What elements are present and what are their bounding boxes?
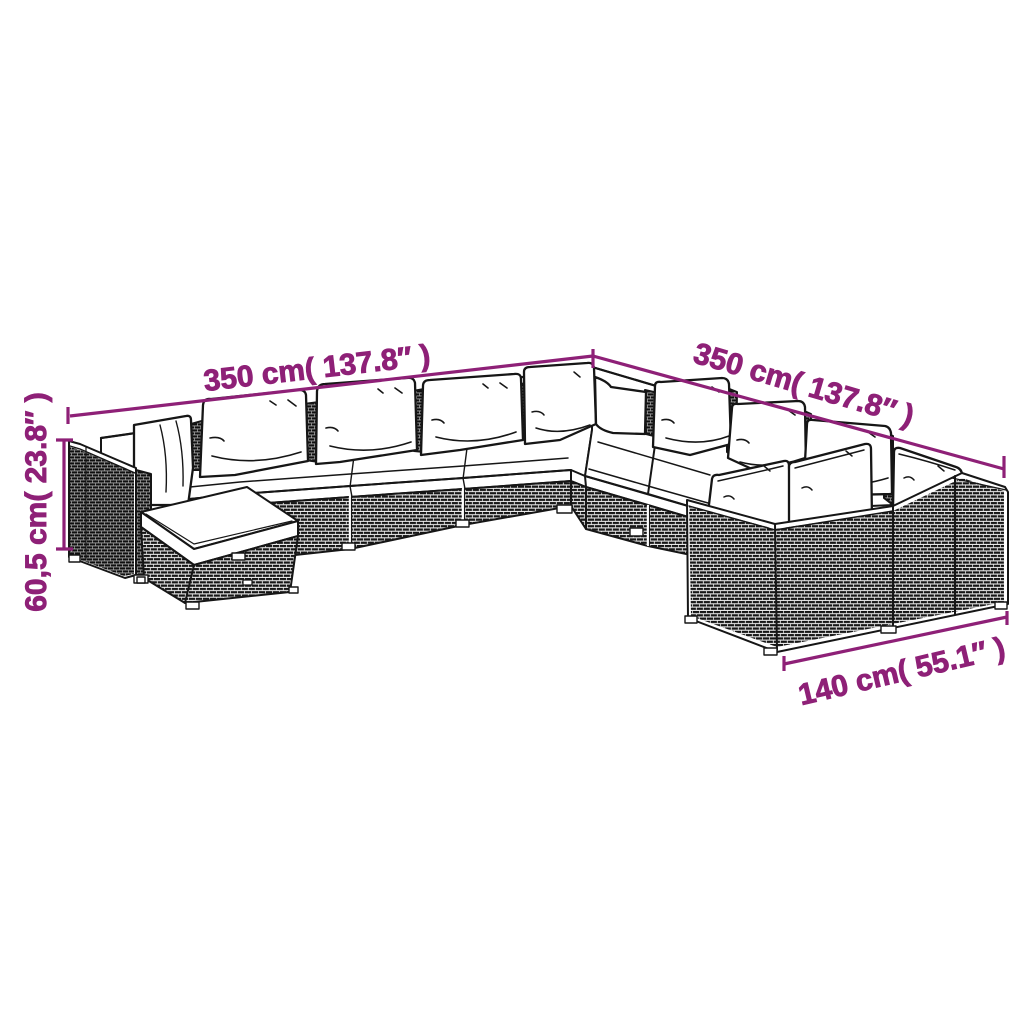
svg-text:60,5 cm( 23.8″ ): 60,5 cm( 23.8″ ) [20, 392, 53, 612]
